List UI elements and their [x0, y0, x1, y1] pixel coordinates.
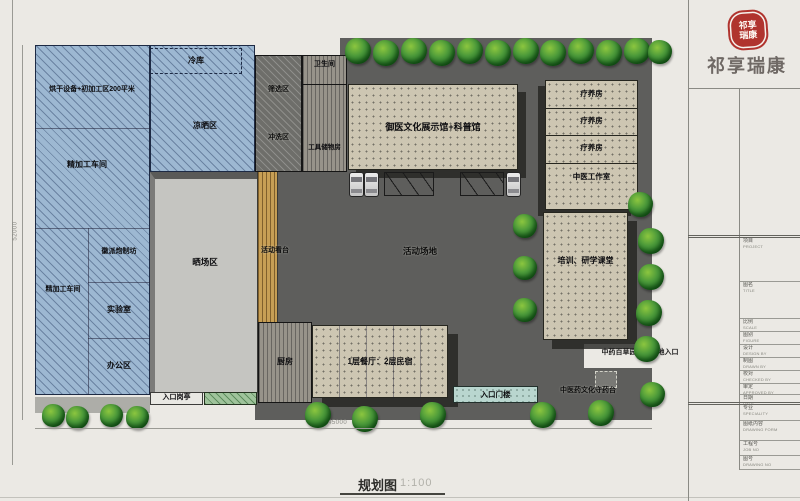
wall-line: [88, 338, 150, 339]
wall-line: [545, 163, 638, 164]
tree-icon: [568, 38, 594, 64]
caption-underline: [340, 493, 445, 495]
zone-label-kitchen: 厨房: [258, 357, 312, 367]
zone-label-screening: 筛选区: [255, 86, 302, 94]
dim-value-horizontal: 45000: [328, 420, 347, 426]
tb-label-en: DRAWING FORM: [743, 428, 800, 432]
wall-line: [545, 108, 638, 109]
tree-icon: [401, 38, 427, 64]
tb-label-en: CHECKED BY: [743, 378, 800, 382]
zone-label-drying: 烘干设备+初加工区200平米: [36, 86, 148, 94]
car-icon: [506, 172, 521, 197]
tb-label-en: SCALE: [743, 326, 800, 330]
zone-label-sun-yard: 晒场区: [163, 257, 247, 267]
panel-border: [688, 0, 689, 501]
titleblock-row: 比例SCALE: [740, 319, 800, 332]
tree-icon: [530, 402, 556, 428]
titleblock-row: 项目PROJECT: [740, 238, 800, 282]
tree-icon: [588, 400, 614, 426]
tree-icon: [66, 406, 89, 429]
tree-icon: [42, 404, 65, 427]
zone-label-hui-workshop: 徽派炮制坊: [89, 248, 149, 256]
car-icon: [364, 172, 379, 197]
tb-label-en: TITLE: [743, 289, 800, 293]
entry-planter: [204, 392, 257, 405]
tree-icon: [634, 336, 660, 362]
wall-line: [545, 135, 638, 136]
drawing-caption-scale: 1:100: [400, 477, 433, 489]
tree-icon: [513, 38, 539, 64]
tb-label-en: JOB NO: [743, 448, 800, 452]
titleblock-lower: 专业SPECIALITY 图纸内容DRAWING FORM 工程号JOB NO …: [740, 405, 800, 470]
tb-label-en: DESIGN BY: [743, 352, 800, 356]
tree-icon: [126, 406, 149, 429]
zone-label-rehab-2: 疗养房: [545, 116, 638, 125]
zone-label-rinsing: 冲洗区: [255, 134, 302, 142]
zone-label-airing: 凉晒区: [160, 121, 250, 131]
tb-label-en: SPECIALITY: [743, 412, 800, 416]
titleblock-row: 图名TITLE: [740, 282, 800, 319]
parking-stalls: [460, 172, 504, 196]
dim-value-vertical: 52000: [13, 221, 19, 240]
tb-label-en: DRAWING NO: [743, 463, 800, 467]
zone-label-restaurant: 1层餐厅：2层民宿: [314, 357, 446, 367]
herb-stand-outline: [595, 371, 617, 388]
brand-seal-icon: 祁享 瑞康: [727, 9, 770, 52]
tree-icon: [513, 256, 537, 280]
zone-label-herb-stand: 中医药文化守药台: [538, 387, 638, 395]
wall-line: [88, 282, 150, 283]
tree-icon: [638, 264, 664, 290]
zone-label-tcm-studio: 中医工作室: [545, 172, 638, 181]
zone-label-exhibition: 御医文化展示馆+科普馆: [350, 122, 516, 133]
wall-line: [302, 84, 347, 85]
tree-icon: [420, 402, 446, 428]
zone-label-ground: 活动场地: [385, 246, 455, 256]
tree-icon: [596, 40, 622, 66]
tree-icon: [636, 300, 662, 326]
zone-label-rehab-1: 疗养房: [545, 89, 638, 98]
toilet-tool-building: [302, 55, 347, 172]
dim-line-horizontal: [35, 428, 652, 429]
sheet-bottom-border: [0, 497, 800, 498]
titleblock-row: 校对CHECKED BY: [740, 371, 800, 384]
wall-line: [35, 128, 150, 129]
titleblock-row: 专业SPECIALITY: [740, 405, 800, 421]
wall-line: [35, 228, 150, 229]
titleblock-row: 工程号JOB NO: [740, 441, 800, 456]
titleblock-row: 审定APPROVED BY: [740, 384, 800, 395]
tb-label-en: DRAWN BY: [743, 365, 800, 369]
zone-label-tool-room: 工具储物房: [301, 144, 348, 152]
drawing-caption-name: 规划图: [358, 475, 397, 494]
screening-building: [255, 55, 302, 172]
site-plan-sheet: 冷库 烘干设备+初加工区200平米 凉晒区 精加工车间 徽派炮制坊 精加工车间 …: [0, 0, 800, 501]
tree-icon: [429, 40, 455, 66]
zone-label-lab: 实验室: [89, 305, 149, 315]
tb-label-en: FIGURE: [743, 339, 800, 343]
parking-stalls: [384, 172, 434, 196]
tree-icon: [485, 40, 511, 66]
seal-text-bottom: 瑞康: [739, 29, 758, 41]
panel-divider-h: [688, 88, 800, 89]
tree-icon: [628, 192, 653, 217]
titleblock-row: 设计DESIGN BY: [740, 345, 800, 358]
titleblock-row: 图号DRAWING NO: [740, 456, 800, 470]
car-icon: [349, 172, 364, 197]
tb-label-en: PROJECT: [743, 245, 800, 249]
tree-icon: [100, 404, 123, 427]
zone-label-gate: 入口门楼: [453, 390, 538, 399]
titleblock-row: 制图DRAWN BY: [740, 358, 800, 371]
tree-icon: [457, 38, 483, 64]
tree-icon: [513, 214, 537, 238]
tree-icon: [345, 38, 371, 64]
tree-icon: [648, 40, 672, 64]
tree-icon: [624, 38, 650, 64]
tree-icon: [638, 228, 664, 254]
zone-label-rehab-3: 疗养房: [545, 143, 638, 152]
zone-label-stand: 活动看台: [250, 247, 300, 255]
titleblock-row: 图别FIGURE: [740, 332, 800, 345]
zone-label-cold-storage: 冷库: [150, 56, 242, 66]
zone-label-office: 办公区: [89, 361, 149, 371]
sun-yard-area: [150, 172, 257, 392]
brand-name: 祁享瑞康: [694, 52, 800, 78]
titleblock-row: 图纸内容DRAWING FORM: [740, 421, 800, 441]
tree-icon: [640, 382, 665, 407]
zone-label-training: 培训、研学课堂: [543, 256, 628, 266]
tree-icon: [540, 40, 566, 66]
zone-label-toilet: 卫生间: [302, 61, 347, 69]
zone-label-fine-workshop-bottom: 精加工车间: [36, 286, 90, 294]
zone-label-fine-workshop-top: 精加工车间: [42, 160, 132, 170]
zone-label-entry-booth: 入口岗亭: [150, 394, 203, 402]
dim-line-vertical: [22, 45, 23, 420]
tree-icon: [373, 40, 399, 66]
tree-icon: [513, 298, 537, 322]
training-building: [543, 212, 628, 340]
processing-building-left: [35, 45, 150, 395]
titleblock: 项目PROJECT 图名TITLE 比例SCALE 图别FIGURE 设计DES…: [740, 238, 800, 405]
